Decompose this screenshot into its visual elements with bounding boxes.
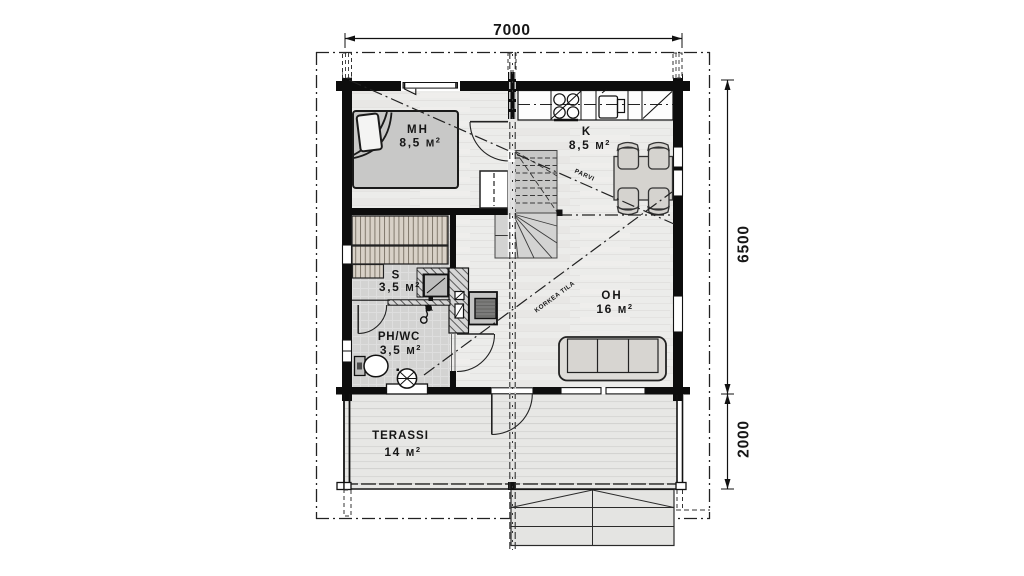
svg-text:PH/WC: PH/WC (378, 331, 420, 343)
svg-text:3,5 M2: 3,5 M2 (379, 280, 421, 294)
svg-text:8,5 M2: 8,5 M2 (569, 138, 611, 152)
svg-text:2000: 2000 (736, 420, 753, 458)
svg-text:MH: MH (407, 124, 429, 136)
svg-text:OH: OH (601, 290, 622, 302)
svg-text:8,5 M2: 8,5 M2 (399, 136, 441, 150)
svg-text:TERASSI: TERASSI (372, 430, 429, 442)
svg-text:7000: 7000 (493, 22, 531, 39)
svg-text:3,5 M2: 3,5 M2 (380, 343, 422, 357)
svg-text:6500: 6500 (736, 225, 753, 263)
svg-text:K: K (582, 126, 592, 138)
